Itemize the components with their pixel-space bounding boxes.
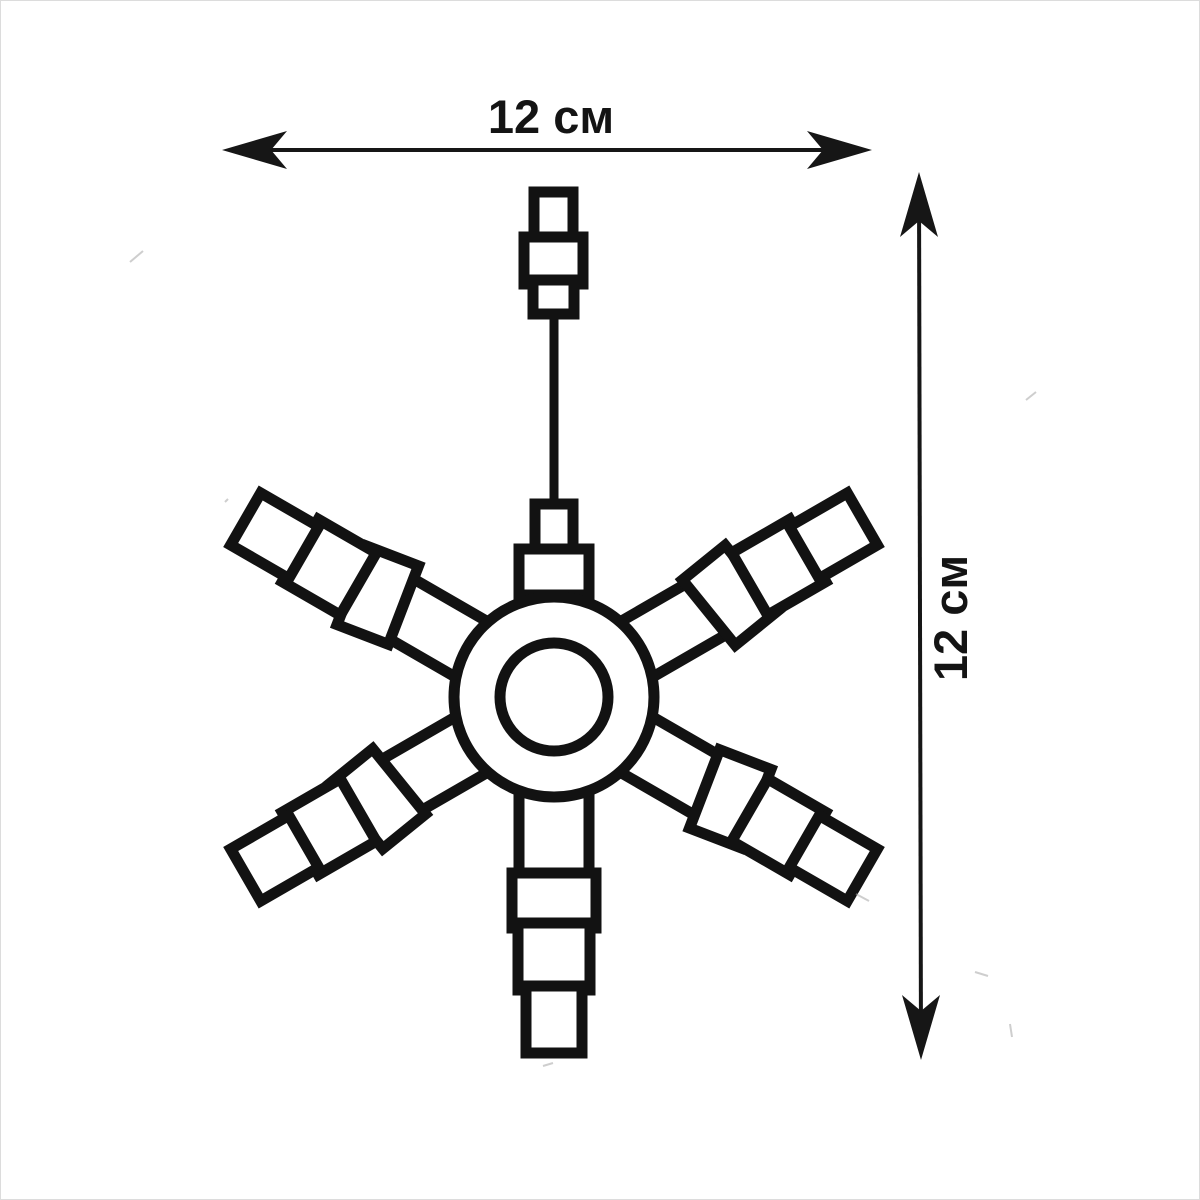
scan-mark bbox=[1010, 1024, 1012, 1037]
arm-segment bbox=[518, 923, 590, 990]
top-bulb bbox=[519, 549, 589, 595]
arm-top-hanger bbox=[519, 192, 589, 595]
plug-neck-segment bbox=[533, 280, 574, 314]
hub-inner-ring bbox=[500, 643, 608, 751]
horizontal-dimension: 12 см bbox=[222, 90, 872, 169]
arm-shaft bbox=[519, 791, 589, 877]
arm-tip bbox=[526, 986, 582, 1053]
horizontal-dimension-label: 12 см bbox=[488, 90, 614, 143]
arm-lower-left bbox=[223, 704, 496, 914]
snowflake-figure bbox=[223, 192, 885, 1053]
diagram-svg: 12 см 12 см bbox=[0, 0, 1200, 1200]
vertical-dimension-line bbox=[919, 184, 921, 1050]
vertical-dimension-label: 12 см bbox=[924, 555, 977, 681]
arm-lower-right bbox=[613, 704, 886, 914]
diagram-canvas: 12 см 12 см bbox=[0, 0, 1200, 1200]
scan-mark bbox=[225, 499, 228, 502]
scan-mark bbox=[130, 251, 143, 262]
scan-mark bbox=[856, 894, 869, 901]
scan-mark bbox=[975, 972, 988, 976]
arm-upper-left bbox=[223, 479, 496, 689]
scan-mark bbox=[543, 1063, 553, 1066]
vertical-dimension: 12 см bbox=[900, 172, 977, 1060]
arm-upper-right bbox=[613, 479, 886, 689]
scan-mark bbox=[1026, 392, 1036, 400]
arm-bottom bbox=[512, 791, 596, 1053]
